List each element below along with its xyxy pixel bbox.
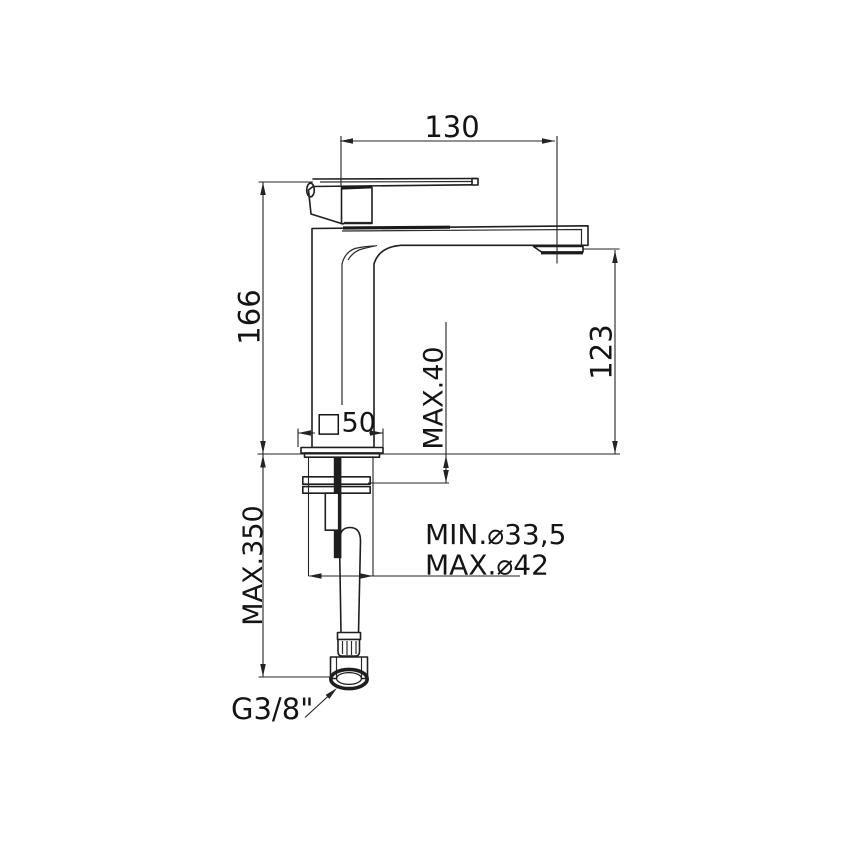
faucet-dimension-drawing: 130 166 123 MAX.40 □50 MAX.350 MIN.⌀33,5…	[0, 0, 868, 868]
dim-hole-arrow-right	[360, 573, 373, 578]
dim-square50-label: □50	[316, 408, 376, 439]
dim-166-arrow-top	[260, 183, 266, 196]
under-deck-group	[303, 457, 370, 688]
lever-top-edge	[313, 179, 477, 180]
mounting-bracket	[325, 493, 338, 530]
lever-end-cap	[472, 179, 478, 186]
dim-40-arrow-top	[443, 456, 449, 469]
dim-166-label: 166	[233, 289, 267, 344]
dim-hole-arrow-left	[309, 573, 322, 578]
cartridge-top-edge	[342, 187, 373, 188]
hose-right-edge	[359, 541, 361, 633]
dim-350-arrow-bottom	[260, 664, 266, 677]
technical-drawing-page: 130 166 123 MAX.40 □50 MAX.350 MIN.⌀33,5…	[0, 0, 868, 868]
dim-max350-label: MAX.350	[238, 505, 269, 625]
hex-nut-face-inner	[337, 673, 362, 685]
hose-collar	[338, 633, 361, 640]
dim-40-arrow-bottom	[443, 470, 449, 483]
dim-350-arrow-top	[260, 455, 266, 468]
hose-bend	[340, 528, 361, 542]
dim-max40-label: MAX.40	[419, 346, 450, 449]
dim-hole-max-label: MAX.⌀42	[425, 549, 549, 582]
spout-top-shadow	[343, 227, 450, 228]
dim-130-arrow-right	[542, 138, 555, 143]
inlet-thread-label: G3/8"	[231, 692, 313, 726]
dim-123-label: 123	[585, 324, 619, 379]
dim-50-arrow-left	[298, 430, 311, 435]
dim-130-label: 130	[424, 110, 479, 144]
dim-hole-min-label: MIN.⌀33,5	[425, 518, 566, 551]
cartridge-block	[342, 188, 373, 224]
lever-bottom-edge	[313, 185, 472, 187]
dim-123-arrow-top	[612, 251, 618, 264]
dimension-text-group: 130 166 123 MAX.40 □50 MAX.350 MIN.⌀33,5…	[231, 110, 619, 726]
base-plate-upper	[301, 448, 383, 454]
dim-123-arrow-bottom	[612, 441, 618, 454]
lever-mid-edge	[320, 182, 472, 183]
aerator-outline	[534, 247, 584, 253]
dim-166-arrow-bottom	[260, 441, 266, 454]
dim-130-arrow-left	[340, 138, 353, 143]
